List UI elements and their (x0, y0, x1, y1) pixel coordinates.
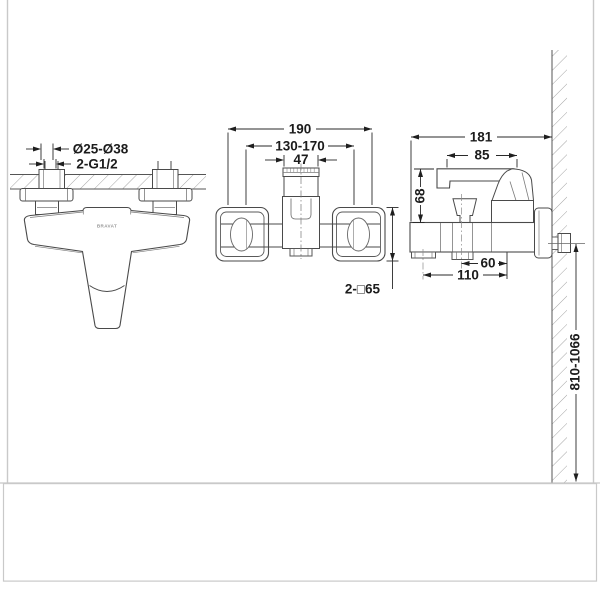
escutcheon-right (139, 189, 192, 215)
dim-cartridge-width: 47 (293, 152, 308, 167)
escutcheon-left (20, 189, 73, 215)
faucet-installation-drawing: BRAVAT (0, 0, 600, 600)
dim-handle-length: 85 (474, 148, 490, 163)
dim-spout-offset: 110 (457, 268, 479, 283)
mixer-body-front: BRAVAT (24, 208, 189, 329)
wall-section-right (552, 50, 567, 483)
connector-right (153, 161, 179, 189)
upper-body (492, 201, 534, 223)
cartridge-housing (283, 164, 320, 260)
dim-thread-size: 2-G1/2 (76, 157, 117, 172)
dim-installation-height: 810-1066 (568, 333, 583, 391)
brand-logo-text: BRAVAT (97, 224, 117, 229)
dim-overall-depth: 181 (470, 130, 493, 145)
pipe-fitting (558, 234, 571, 253)
shower-outlet (452, 252, 473, 260)
front-view: BRAVAT (10, 161, 206, 329)
dim-overall-width: 190 (289, 122, 312, 137)
dim-outlet-offset: 60 (480, 256, 495, 271)
top-view (216, 164, 385, 262)
dim-escutcheon-size: 2-□65 (345, 282, 381, 297)
wall-hatch (553, 50, 568, 483)
floor-band (4, 484, 597, 581)
dim-connector-diameter: Ø25-Ø38 (73, 142, 129, 157)
wall-flange (535, 208, 553, 258)
dim-handle-height: 68 (413, 188, 428, 204)
diverter-knob (453, 199, 477, 223)
technical-drawing-page: BRAVAT (0, 0, 600, 600)
